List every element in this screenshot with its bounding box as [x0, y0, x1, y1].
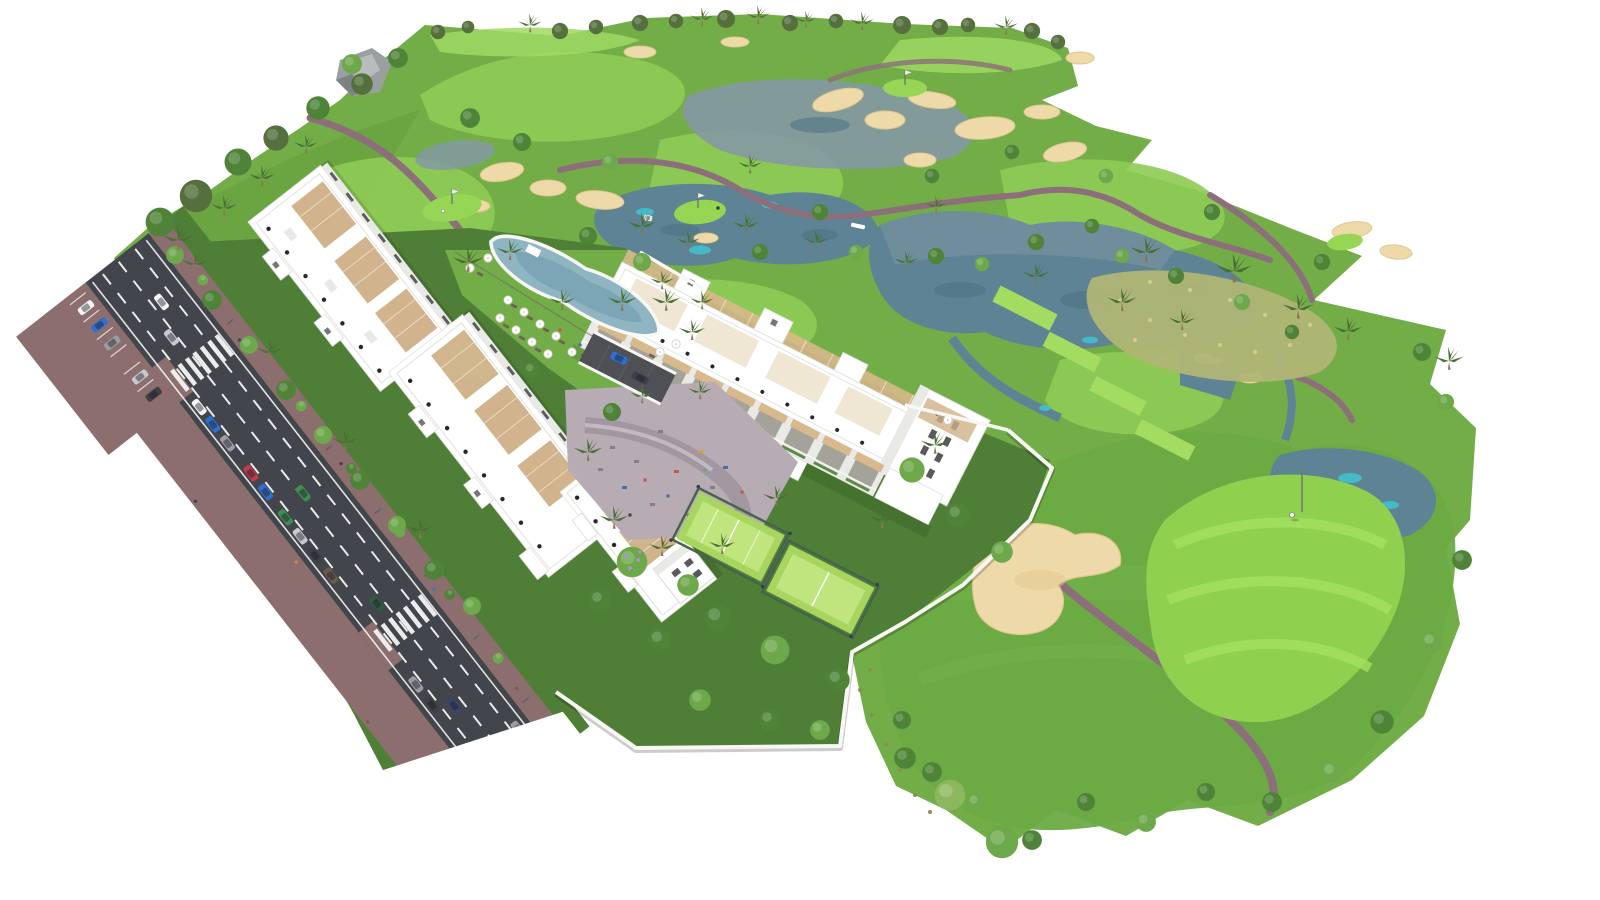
render-canvas [0, 0, 1600, 900]
purple-flowering-tree [617, 547, 648, 578]
aerial-masterplan-render [0, 0, 1600, 900]
golfer-shadow [1291, 519, 1299, 522]
golfer-dot [441, 209, 445, 213]
bunker-shade [1014, 570, 1066, 590]
golfer-dot [716, 206, 720, 210]
golfer [1290, 513, 1295, 518]
